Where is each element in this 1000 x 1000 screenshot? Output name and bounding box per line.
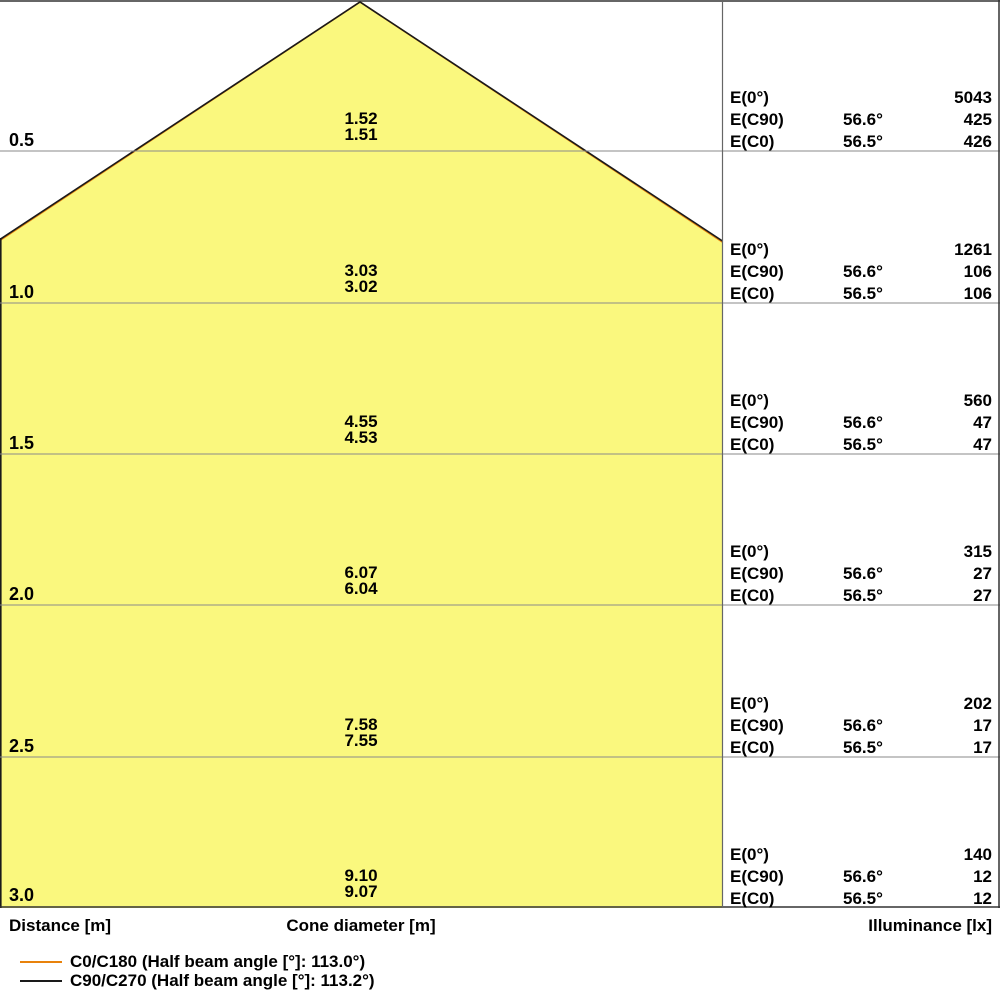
e-label: E(0°) (730, 693, 843, 715)
distance-label: 2.0 (9, 585, 34, 603)
e-angle (843, 844, 909, 866)
e-label: E(C90) (730, 261, 843, 283)
cone-diameter-c0: 3.02 (261, 279, 461, 295)
e-label: E(C0) (730, 283, 843, 305)
distance-label: 0.5 (9, 131, 34, 149)
illuminance-line: E(C0) 56.5° 47 (722, 434, 999, 456)
e-angle: 56.5° (843, 888, 909, 910)
e-value: 140 (909, 844, 992, 866)
e-label: E(0°) (730, 239, 843, 261)
e-label: E(C90) (730, 866, 843, 888)
e-angle: 56.6° (843, 109, 909, 131)
illuminance-line: E(C90) 56.6° 106 (722, 261, 999, 283)
illuminance-line: E(C90) 56.6° 17 (722, 715, 999, 737)
cone-diameter-values: 3.03 3.02 (261, 263, 461, 295)
e-angle: 56.5° (843, 283, 909, 305)
e-value: 17 (909, 737, 992, 759)
illuminance-block: E(0°) 5043 E(C90) 56.6° 425 E(C0) 56.5° … (722, 87, 999, 153)
axis-label-distance: Distance [m] (9, 917, 111, 934)
e-value: 1261 (909, 239, 992, 261)
illuminance-line: E(0°) 1261 (722, 239, 999, 261)
e-label: E(C90) (730, 412, 843, 434)
illuminance-line: E(C90) 56.6° 425 (722, 109, 999, 131)
cone-diameter-c0: 9.07 (261, 884, 461, 900)
e-angle (843, 239, 909, 261)
e-value: 12 (909, 888, 992, 910)
illuminance-line: E(C0) 56.5° 27 (722, 585, 999, 607)
e-angle: 56.5° (843, 585, 909, 607)
illuminance-line: E(0°) 560 (722, 390, 999, 412)
cone-diameter-values: 1.52 1.51 (261, 111, 461, 143)
cone-diameter-values: 7.58 7.55 (261, 717, 461, 749)
illuminance-block: E(0°) 560 E(C90) 56.6° 47 E(C0) 56.5° 47 (722, 390, 999, 456)
legend-line-c90-c270-icon (20, 980, 62, 982)
illuminance-block: E(0°) 315 E(C90) 56.6° 27 E(C0) 56.5° 27 (722, 541, 999, 607)
e-label: E(C0) (730, 888, 843, 910)
distance-label: 2.5 (9, 737, 34, 755)
e-value: 106 (909, 261, 992, 283)
cone-diameter-c0: 4.53 (261, 430, 461, 446)
legend-label: C0/C180 (Half beam angle [°]: 113.0°) (70, 953, 365, 970)
illuminance-line: E(C0) 56.5° 106 (722, 283, 999, 305)
e-angle (843, 693, 909, 715)
illuminance-line: E(C0) 56.5° 17 (722, 737, 999, 759)
cone-diameter-values: 9.10 9.07 (261, 868, 461, 900)
illuminance-line: E(C90) 56.6° 47 (722, 412, 999, 434)
illuminance-line: E(0°) 202 (722, 693, 999, 715)
e-angle (843, 541, 909, 563)
illuminance-line: E(C90) 56.6° 27 (722, 563, 999, 585)
cone-diameter-c0: 7.55 (261, 733, 461, 749)
e-value: 47 (909, 412, 992, 434)
legend-item-c90-c270: C90/C270 (Half beam angle [°]: 113.2°) (20, 972, 375, 989)
e-value: 12 (909, 866, 992, 888)
e-angle: 56.5° (843, 434, 909, 456)
illuminance-line: E(0°) 140 (722, 844, 999, 866)
e-label: E(C0) (730, 131, 843, 153)
distance-label: 3.0 (9, 886, 34, 904)
e-value: 425 (909, 109, 992, 131)
e-value: 27 (909, 585, 992, 607)
e-angle: 56.6° (843, 261, 909, 283)
e-angle (843, 390, 909, 412)
illuminance-block: E(0°) 1261 E(C90) 56.6° 106 E(C0) 56.5° … (722, 239, 999, 305)
cone-diameter-values: 6.07 6.04 (261, 565, 461, 597)
legend-line-c0-c180-icon (20, 961, 62, 963)
distance-label: 1.0 (9, 283, 34, 301)
e-label: E(0°) (730, 844, 843, 866)
e-angle (843, 87, 909, 109)
distance-label: 1.5 (9, 434, 34, 452)
e-value: 315 (909, 541, 992, 563)
e-angle: 56.6° (843, 412, 909, 434)
e-value: 17 (909, 715, 992, 737)
illuminance-line: E(0°) 315 (722, 541, 999, 563)
light-cone-diagram: 0.5 1.52 1.51 E(0°) 5043 E(C90) 56.6° 42… (0, 0, 1000, 1000)
e-label: E(C90) (730, 563, 843, 585)
e-value: 560 (909, 390, 992, 412)
e-label: E(C0) (730, 585, 843, 607)
e-angle: 56.5° (843, 131, 909, 153)
e-value: 47 (909, 434, 992, 456)
e-angle: 56.6° (843, 866, 909, 888)
e-label: E(C90) (730, 109, 843, 131)
legend-item-c0-c180: C0/C180 (Half beam angle [°]: 113.0°) (20, 953, 365, 970)
illuminance-line: E(C0) 56.5° 426 (722, 131, 999, 153)
illuminance-block: E(0°) 140 E(C90) 56.6° 12 E(C0) 56.5° 12 (722, 844, 999, 910)
e-label: E(C0) (730, 737, 843, 759)
axis-label-illuminance: Illuminance [lx] (868, 917, 992, 934)
e-angle: 56.5° (843, 737, 909, 759)
e-label: E(C0) (730, 434, 843, 456)
e-label: E(0°) (730, 390, 843, 412)
cone-diameter-values: 4.55 4.53 (261, 414, 461, 446)
e-label: E(0°) (730, 541, 843, 563)
illuminance-line: E(0°) 5043 (722, 87, 999, 109)
e-value: 27 (909, 563, 992, 585)
cone-diameter-c0: 6.04 (261, 581, 461, 597)
e-angle: 56.6° (843, 563, 909, 585)
axis-label-cone-diameter: Cone diameter [m] (222, 917, 500, 934)
e-label: E(0°) (730, 87, 843, 109)
e-value: 426 (909, 131, 992, 153)
e-value: 5043 (909, 87, 992, 109)
e-label: E(C90) (730, 715, 843, 737)
cone-diameter-c0: 1.51 (261, 127, 461, 143)
illuminance-line: E(C90) 56.6° 12 (722, 866, 999, 888)
illuminance-line: E(C0) 56.5° 12 (722, 888, 999, 910)
e-value: 106 (909, 283, 992, 305)
illuminance-block: E(0°) 202 E(C90) 56.6° 17 E(C0) 56.5° 17 (722, 693, 999, 759)
legend-label: C90/C270 (Half beam angle [°]: 113.2°) (70, 972, 375, 989)
e-angle: 56.6° (843, 715, 909, 737)
e-value: 202 (909, 693, 992, 715)
